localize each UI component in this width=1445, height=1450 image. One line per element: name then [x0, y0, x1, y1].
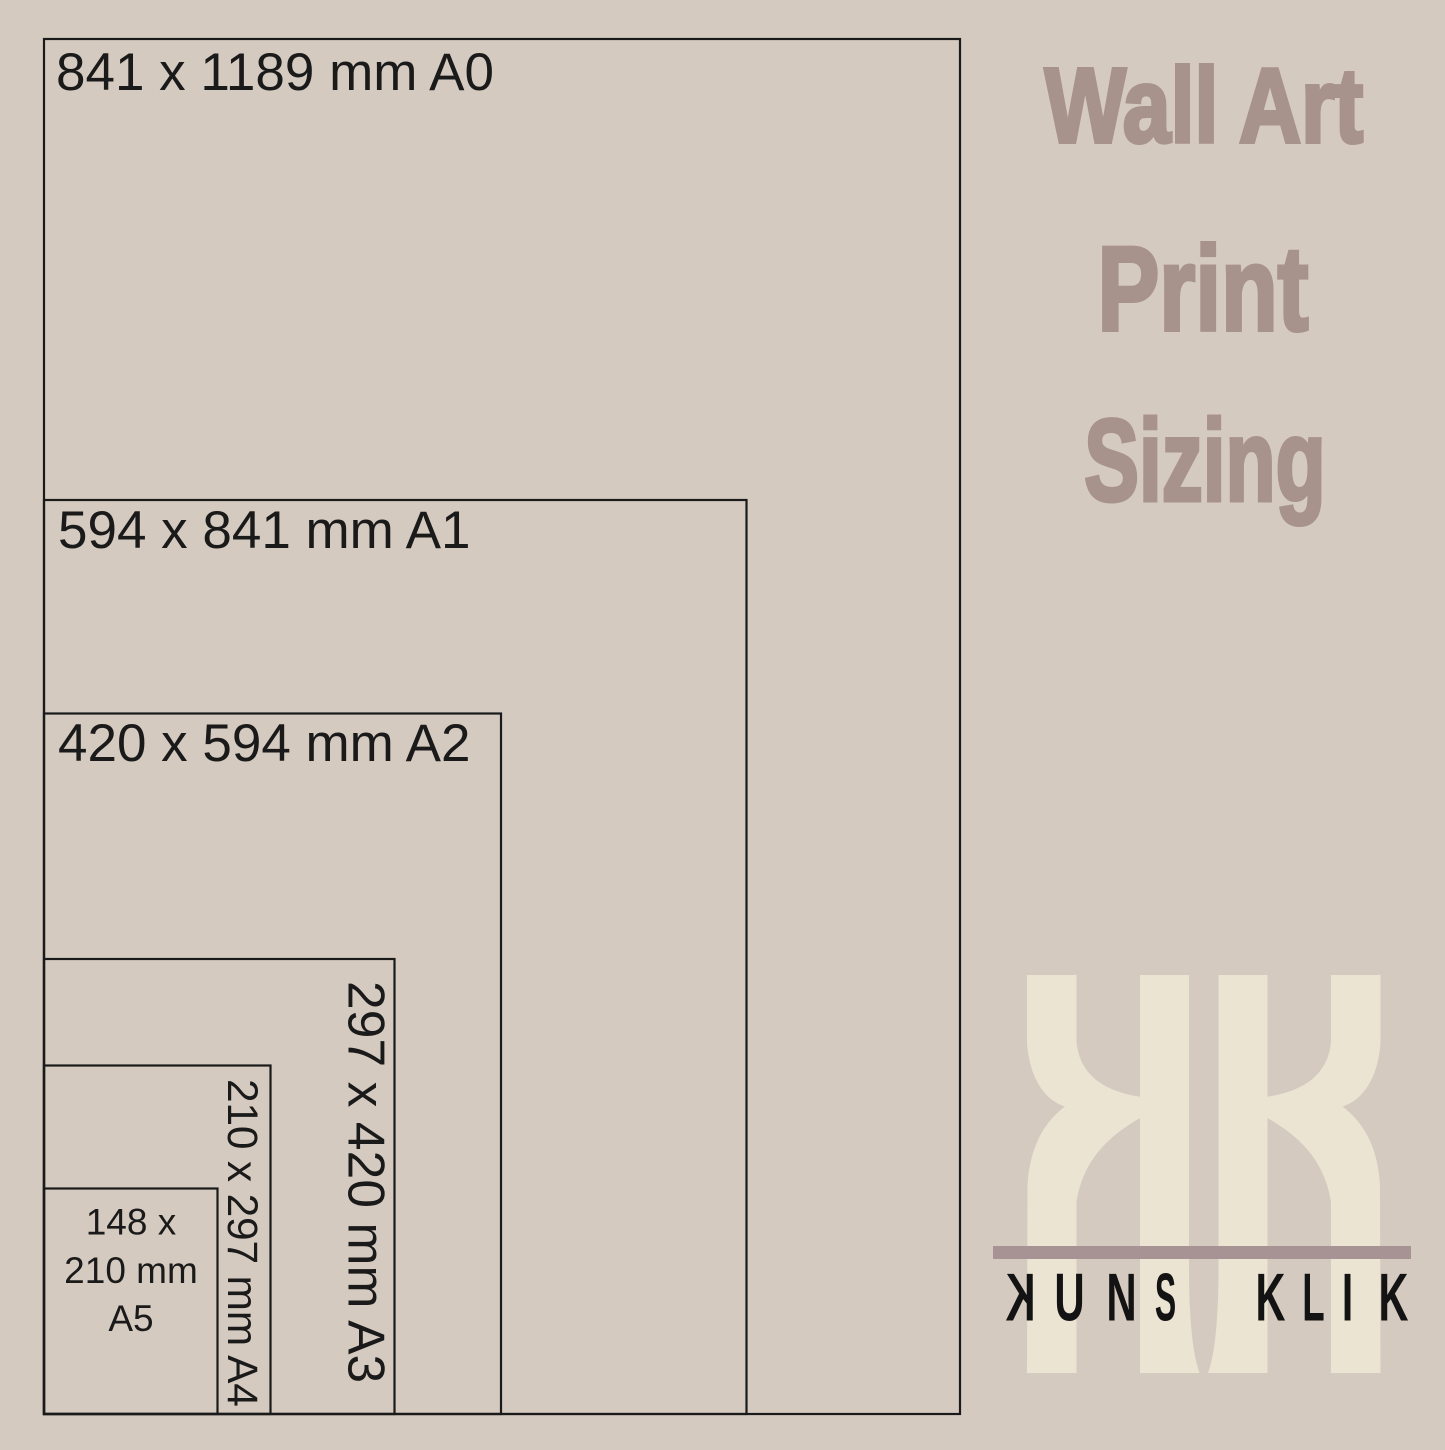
- svg-text:594 x 841 mm A1: 594 x 841 mm A1: [58, 501, 470, 560]
- svg-text:210 x 297 mm A4: 210 x 297 mm A4: [218, 1079, 265, 1407]
- svg-text:297 x 420 mm A3: 297 x 420 mm A3: [338, 981, 396, 1383]
- svg-text:I: I: [1342, 1259, 1353, 1335]
- svg-text:420 x 594 mm A2: 420 x 594 mm A2: [58, 714, 470, 773]
- svg-text:148 x: 148 x: [86, 1202, 177, 1243]
- svg-text:A5: A5: [108, 1298, 153, 1339]
- svg-text:S: S: [1155, 1260, 1176, 1336]
- svg-text:210 mm: 210 mm: [64, 1250, 198, 1291]
- svg-text:L: L: [1302, 1260, 1324, 1336]
- svg-text:Wall Art: Wall Art: [1045, 48, 1363, 166]
- svg-text:Print: Print: [1097, 221, 1308, 355]
- svg-text:K: K: [1005, 1259, 1035, 1335]
- svg-text:841 x 1189 mm A0: 841 x 1189 mm A0: [56, 43, 494, 102]
- svg-text:Sizing: Sizing: [1084, 397, 1325, 526]
- svg-text:U: U: [1054, 1259, 1084, 1335]
- svg-text:K: K: [1379, 1259, 1409, 1335]
- svg-text:K: K: [1256, 1259, 1286, 1335]
- svg-text:N: N: [1106, 1259, 1136, 1335]
